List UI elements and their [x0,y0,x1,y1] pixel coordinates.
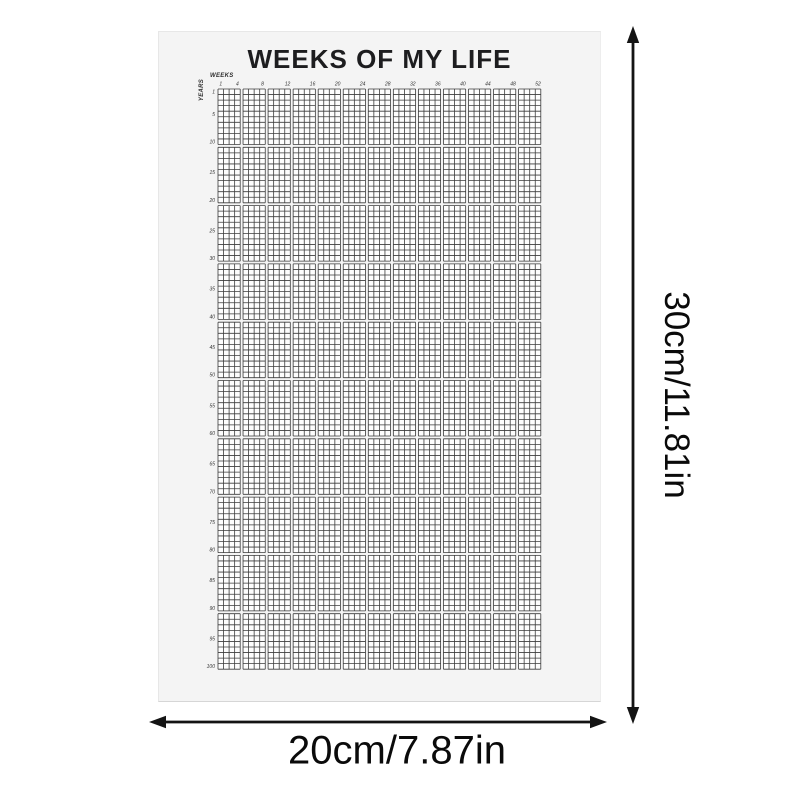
year-tick-label: 5 [212,112,215,118]
week-tick-label: 24 [359,82,366,88]
height-dimension-label: 30cm/11.81in [656,291,696,499]
week-tick-label: 1 [219,82,222,88]
week-tick-label: 4 [236,82,239,88]
week-tick-label: 20 [334,82,341,88]
week-tick-label: 48 [510,82,516,88]
year-tick-label: 90 [209,606,215,612]
year-tick-label: 70 [209,489,215,495]
year-tick-label: 80 [209,548,215,554]
year-tick-label: 50 [209,373,215,379]
week-tick-label: 8 [261,82,264,88]
week-tick-label: 12 [285,82,291,88]
year-tick-label: 40 [209,314,215,320]
year-tick-label: 95 [209,636,215,642]
week-tick-label: 28 [384,82,391,88]
week-tick-label: 32 [410,82,416,88]
life-calendar-poster: WEEKS OF MY LIFE WEEKS YEARS 14812162024… [158,31,601,702]
year-tick-label: 60 [209,431,215,437]
product-image: WEEKS OF MY LIFE WEEKS YEARS 14812162024… [0,0,800,800]
width-dimension-label: 20cm/7.87in [288,729,506,774]
week-tick-label: 44 [485,82,491,88]
year-tick-label: 1 [212,90,215,96]
height-dimension-arrow [620,26,648,724]
year-tick-label: 20 [208,198,215,204]
weeks-grid: 1481216202428323640444852151015202530354… [187,73,577,683]
year-tick-label: 75 [209,520,215,526]
year-tick-label: 25 [208,228,215,234]
year-tick-label: 55 [209,403,215,409]
year-tick-label: 85 [209,578,215,584]
year-tick-label: 30 [209,256,215,262]
week-tick-label: 16 [310,82,316,88]
year-tick-label: 65 [209,462,215,468]
week-tick-label: 40 [460,82,466,88]
week-tick-label: 36 [435,82,441,88]
year-tick-label: 35 [209,287,215,293]
year-tick-label: 100 [207,664,216,670]
year-tick-label: 10 [209,140,215,146]
year-tick-label: 45 [209,345,215,351]
poster-title: WEEKS OF MY LIFE [159,44,600,75]
week-tick-label: 52 [535,82,541,88]
year-tick-label: 15 [209,170,215,176]
